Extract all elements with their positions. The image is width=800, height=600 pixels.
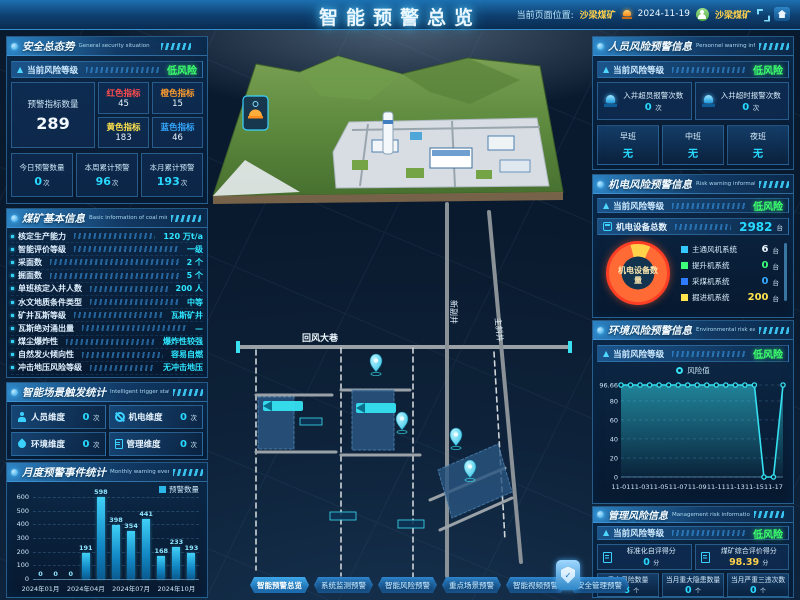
stat-box: 本月累计预警193次 bbox=[141, 153, 203, 197]
stat-value: 96次 bbox=[96, 175, 119, 188]
panel-deco bbox=[759, 327, 789, 334]
info-label: 智能评价等级 bbox=[18, 244, 66, 255]
mine-info-row: 单班核定入井人数200 人 bbox=[11, 283, 203, 296]
panel-title: 煤矿基本信息 bbox=[22, 211, 85, 226]
bullet-icon bbox=[11, 261, 14, 264]
legend-unit: 台 bbox=[773, 277, 780, 287]
trigger-box: 管理维度0 次 bbox=[109, 432, 204, 456]
bullet-icon bbox=[11, 340, 14, 343]
leader-dots bbox=[82, 325, 187, 331]
mine-info-row: 智能评价等级一级 bbox=[11, 243, 203, 256]
panel-deco bbox=[173, 469, 203, 476]
y-axis-tick: 100 bbox=[11, 561, 29, 569]
indicator-label: 蓝色指标 bbox=[160, 121, 194, 133]
mine-info-row: 掘面数5 个 bbox=[11, 270, 203, 283]
data-point bbox=[619, 383, 623, 387]
stat-label: 今日预警数量 bbox=[20, 162, 65, 173]
bar bbox=[157, 556, 165, 579]
clipboard-icon bbox=[115, 439, 123, 449]
panel-title: 人员风险预警信息 bbox=[608, 39, 692, 54]
mine-info-row: 采面数2 个 bbox=[11, 256, 203, 269]
leader-dots bbox=[86, 67, 159, 73]
mgmt-stat-value: 0 个 bbox=[750, 585, 766, 596]
panel-title: 智能场景触发统计 bbox=[22, 385, 106, 400]
legend-label: 主通风机系统 bbox=[692, 244, 758, 255]
info-value: 2 个 bbox=[187, 257, 203, 268]
bar-value-label: 193 bbox=[181, 544, 201, 552]
x-axis-tick: 11-15 bbox=[745, 483, 764, 491]
bar-value-label: 0 bbox=[61, 570, 81, 578]
info-label: 自然发火倾向性 bbox=[18, 349, 74, 360]
alarm-label: 入井超员报警次数 bbox=[623, 90, 683, 101]
trigger-label: 环境维度 bbox=[31, 438, 79, 450]
info-value: 爆炸性较强 bbox=[163, 336, 203, 347]
data-point bbox=[705, 383, 709, 387]
panel-title: 安全总态势 bbox=[22, 39, 75, 54]
donut-center-label: 机电设备数量 bbox=[617, 255, 659, 297]
alarm-value: 0 次 bbox=[645, 102, 662, 113]
risk-level-row: ▲ 当前风险等级 低风险 bbox=[597, 345, 789, 362]
bullet-icon bbox=[11, 366, 14, 369]
bullet-icon bbox=[11, 248, 14, 251]
stat-label: 本周累计预警 bbox=[85, 162, 130, 173]
data-point bbox=[733, 383, 737, 387]
indicator-total-box: 预警指标数量 289 bbox=[11, 82, 95, 148]
risk-level-row: ▲ 当前风险等级 低风险 bbox=[597, 61, 789, 78]
score-label: 标准化自评得分 bbox=[627, 546, 676, 556]
alarm-box: 入井超时报警次数0 次 bbox=[695, 82, 790, 120]
legend-label: 采煤机系统 bbox=[692, 276, 758, 287]
equipment-legend: 主通风机系统6 台提升机系统0 台采煤机系统0 台掘进机系统200 台 bbox=[681, 243, 779, 304]
x-axis-tick: 11-05 bbox=[650, 483, 669, 491]
bar-value-label: 168 bbox=[151, 547, 171, 555]
leader-dots bbox=[90, 299, 179, 305]
panel-title: 月度预警事件统计 bbox=[22, 465, 106, 480]
data-point bbox=[762, 475, 766, 479]
equipment-total-value: 2982 bbox=[739, 220, 772, 234]
env-line-chart: 02040608096.6611-0111-0311-0511-0711-091… bbox=[595, 375, 793, 499]
legend-scrollbar[interactable] bbox=[784, 243, 787, 301]
panel-header: 安全总态势 General security situation bbox=[7, 37, 207, 56]
gear-icon bbox=[115, 412, 125, 422]
panel-header: 煤矿基本信息 Basic information of coal mine bbox=[7, 209, 207, 228]
y-axis-tick: 60 bbox=[610, 416, 618, 424]
y-axis-tick: 40 bbox=[610, 435, 618, 443]
x-axis-tick: 2024年10月 bbox=[150, 583, 202, 593]
bullet-icon bbox=[11, 301, 14, 304]
panel-dot-icon bbox=[11, 215, 18, 222]
alarm-count-row: 入井超员报警次数0 次入井超时报警次数0 次 bbox=[597, 82, 789, 120]
location-label: 当前页面位置: bbox=[517, 8, 574, 21]
info-label: 煤尘爆炸性 bbox=[18, 336, 58, 347]
stat-unit: 次 bbox=[112, 179, 119, 187]
bar bbox=[82, 553, 90, 579]
bullet-icon bbox=[11, 353, 14, 356]
shift-box: 夜班无 bbox=[727, 125, 789, 165]
indicator-label: 橙色指标 bbox=[160, 87, 194, 99]
equipment-donut-chart: 机电设备数量 bbox=[603, 241, 673, 311]
dashboard-root: 回风大巷 新副井 主斜井 智能预警总览 当前页面位置: 沙梁煤矿 2024-11… bbox=[0, 0, 800, 600]
indicator-grid: 红色指标45橙色指标15黄色指标183蓝色指标46 bbox=[98, 82, 203, 148]
indicator-total-label: 预警指标数量 bbox=[27, 98, 78, 110]
panel-deco bbox=[173, 389, 203, 396]
info-label: 瓦斯绝对涌出量 bbox=[18, 323, 74, 334]
leader-dots bbox=[90, 286, 168, 292]
leader-dots bbox=[672, 203, 745, 209]
panel-header: 人员风险预警信息 Personnel warning information bbox=[593, 37, 793, 56]
alarm-lamp-icon bbox=[604, 95, 617, 107]
bullet-icon bbox=[11, 287, 14, 290]
risk-label: 当前风险等级 bbox=[613, 348, 664, 360]
indicator-value: 183 bbox=[115, 133, 131, 143]
shift-value: 无 bbox=[688, 145, 698, 160]
leader-dots bbox=[74, 233, 155, 239]
x-axis-tick: 11-01 bbox=[612, 483, 631, 491]
score-box: 煤矿综合评价得分98.39 分 bbox=[695, 544, 790, 570]
panel-trigger-stats: 智能场景触发统计 Intelligent trigger statistics … bbox=[6, 382, 208, 460]
grid-line bbox=[33, 497, 199, 498]
info-value: 200 人 bbox=[176, 283, 203, 294]
legend-swatch bbox=[681, 278, 688, 285]
bullet-icon bbox=[11, 314, 14, 317]
y-axis-tick: 300 bbox=[11, 534, 29, 542]
bar-value-label: 191 bbox=[76, 544, 96, 552]
trigger-label: 管理维度 bbox=[127, 438, 177, 450]
risk-level-row: ▲ 当前风险等级 低风险 bbox=[597, 526, 789, 540]
nav-button[interactable]: 智能预警总览 bbox=[250, 577, 309, 593]
tunnel-network bbox=[236, 204, 572, 578]
trigger-unit: 次 bbox=[191, 414, 198, 422]
legend-unit: 台 bbox=[773, 261, 780, 271]
fullscreen-icon[interactable] bbox=[757, 9, 768, 20]
header-date: 2024-11-19 bbox=[638, 9, 690, 19]
indicator-value: 15 bbox=[172, 99, 183, 109]
risk-level-row: ▲ 当前风险等级 低风险 bbox=[11, 61, 203, 78]
nav-button[interactable]: 重点场景预警 bbox=[442, 577, 501, 593]
info-label: 核定生产能力 bbox=[18, 231, 66, 242]
y-axis-tick: 200 bbox=[11, 548, 29, 556]
panel-subtitle: Environmental risk early warning bbox=[696, 327, 755, 333]
x-axis-tick: 11-13 bbox=[726, 483, 745, 491]
indicator-value: 46 bbox=[172, 133, 183, 143]
alarm-unit: 次 bbox=[655, 104, 662, 112]
drop-icon bbox=[16, 438, 27, 449]
panel-dot-icon bbox=[11, 43, 18, 50]
y-axis-tick: 20 bbox=[610, 454, 618, 462]
trigger-unit: 次 bbox=[191, 441, 198, 449]
y-axis-tick: 0 bbox=[11, 575, 29, 583]
info-value: 5 个 bbox=[187, 270, 203, 281]
panel-header: 月度预警事件统计 Monthly warning event statistic… bbox=[7, 463, 207, 482]
info-label: 掘面数 bbox=[18, 270, 42, 281]
y-axis-tick: 80 bbox=[610, 397, 618, 405]
user-avatar[interactable] bbox=[696, 8, 709, 21]
equipment-total-row: 机电设备总数 2982 台 bbox=[597, 218, 789, 235]
alarm-text: 入井超员报警次数0 次 bbox=[622, 90, 685, 113]
alarm-text: 入井超时报警次数0 次 bbox=[720, 90, 783, 113]
shift-label: 夜班 bbox=[750, 131, 766, 142]
legend-swatch bbox=[681, 262, 688, 269]
leader-dots bbox=[90, 365, 155, 371]
x-axis-tick: 2024年01月 bbox=[15, 583, 67, 593]
document-icon bbox=[701, 552, 710, 563]
document-icon bbox=[603, 552, 612, 563]
y-axis-tick: 96.66 bbox=[599, 382, 618, 390]
bar-value-label: 441 bbox=[136, 510, 156, 518]
bar bbox=[127, 531, 135, 579]
panel-title: 环境风险预警信息 bbox=[608, 323, 692, 338]
trigger-label: 机电维度 bbox=[129, 411, 177, 423]
info-label: 冲击地压风险等级 bbox=[18, 362, 82, 373]
panel-subtitle: Personnel warning information bbox=[696, 43, 755, 49]
panel-subtitle: Intelligent trigger statistics bbox=[110, 389, 169, 395]
mine-info-row: 水文地质条件类型中等 bbox=[11, 296, 203, 309]
bullet-icon bbox=[11, 274, 14, 277]
shaft-label-1: 新副井 bbox=[449, 300, 459, 324]
legend-swatch bbox=[681, 246, 688, 253]
mgmt-stat-unit: 个 bbox=[695, 588, 701, 595]
equipment-legend-item: 提升机系统0 台 bbox=[681, 259, 779, 272]
legend-unit: 台 bbox=[773, 245, 780, 255]
trigger-unit: 次 bbox=[93, 414, 100, 422]
panel-deco bbox=[759, 181, 789, 188]
bar bbox=[187, 553, 195, 579]
x-axis-tick: 11-17 bbox=[764, 483, 783, 491]
score-value: 98.39 分 bbox=[729, 557, 768, 568]
score-unit: 分 bbox=[762, 560, 768, 567]
shift-label: 中班 bbox=[685, 131, 701, 142]
trigger-value: 0 次 bbox=[180, 439, 197, 450]
legend-unit: 台 bbox=[773, 293, 780, 303]
score-text: 标准化自评得分0 分 bbox=[617, 546, 686, 568]
indicator-label: 红色指标 bbox=[106, 87, 140, 99]
monthly-bar-chart: 0100200300400500600000191598398354441168… bbox=[11, 485, 203, 595]
indicator-box: 红色指标45 bbox=[98, 82, 149, 114]
data-point bbox=[638, 383, 642, 387]
info-value: 容易自燃 bbox=[171, 349, 203, 360]
data-point bbox=[628, 383, 632, 387]
panel-mine-info: 煤矿基本信息 Basic information of coal mine 核定… bbox=[6, 208, 208, 378]
shift-value: 无 bbox=[623, 145, 633, 160]
shift-label: 早班 bbox=[620, 131, 636, 142]
leader-dots bbox=[50, 273, 179, 279]
alarm-lamp-icon bbox=[702, 95, 715, 107]
tunnel-label: 回风大巷 bbox=[302, 332, 339, 344]
risk-label: 当前风险等级 bbox=[613, 527, 664, 539]
shield-icon: ✓ bbox=[561, 567, 575, 584]
risk-value: 低风险 bbox=[753, 62, 783, 77]
stat-box: 今日预警数量0次 bbox=[11, 153, 73, 197]
equipment-legend-item: 采煤机系统0 台 bbox=[681, 275, 779, 288]
panel-dot-icon bbox=[11, 469, 18, 476]
risk-label: 当前风险等级 bbox=[613, 200, 664, 212]
alarm-unit: 次 bbox=[753, 104, 760, 112]
risk-value: 低风险 bbox=[753, 198, 783, 213]
panel-env-risk: 环境风险预警信息 Environmental risk early warnin… bbox=[592, 320, 794, 504]
risk-value: 低风险 bbox=[167, 62, 197, 77]
grid-line bbox=[33, 511, 199, 512]
stat-box: 本周累计预警96次 bbox=[76, 153, 138, 197]
x-axis-tick: 11-03 bbox=[631, 483, 650, 491]
score-row: 标准化自评得分0 分煤矿综合评价得分98.39 分 bbox=[597, 544, 789, 570]
x-axis-tick: 11-07 bbox=[669, 483, 688, 491]
data-point bbox=[686, 383, 690, 387]
indicator-value: 45 bbox=[118, 99, 129, 109]
x-axis-tick: 2024年04月 bbox=[60, 583, 112, 593]
y-axis-tick: 400 bbox=[11, 520, 29, 528]
panel-subtitle: Basic information of coal mine bbox=[89, 215, 167, 221]
mgmt-stat-box: 当月严重三违次数0 个 bbox=[727, 573, 789, 597]
panel-mech-risk: 机电风险预警信息 Risk warning information ▲ 当前风险… bbox=[592, 174, 794, 318]
warning-triangle-icon: ▲ bbox=[603, 202, 609, 210]
legend-value: 6 bbox=[762, 244, 769, 255]
warning-triangle-icon: ▲ bbox=[17, 66, 23, 74]
mgmt-stat-unit: 个 bbox=[760, 588, 766, 595]
score-value: 0 分 bbox=[643, 557, 659, 568]
leader-dots bbox=[675, 224, 731, 230]
indicator-total-value: 289 bbox=[36, 114, 69, 133]
mine-info-row: 核定生产能力120 万t/a bbox=[11, 230, 203, 243]
home-button[interactable] bbox=[774, 7, 790, 21]
info-label: 采面数 bbox=[18, 257, 42, 268]
panel-subtitle: Management risk information bbox=[672, 512, 750, 518]
info-value: 无冲击地压 bbox=[163, 362, 203, 373]
risk-value: 低风险 bbox=[753, 346, 783, 361]
mgmt-stat-box: 当月重大隐患数量0 个 bbox=[662, 573, 724, 597]
data-point bbox=[695, 383, 699, 387]
mine-info-row: 煤尘爆炸性爆炸性较强 bbox=[11, 336, 203, 349]
panel-dot-icon bbox=[597, 43, 604, 50]
bar-value-label: 354 bbox=[121, 522, 141, 530]
info-value: 120 万t/a bbox=[163, 231, 203, 242]
data-point bbox=[752, 383, 756, 387]
data-point bbox=[781, 383, 785, 387]
risk-label: 当前风险等级 bbox=[27, 64, 78, 76]
risk-value: 低风险 bbox=[753, 526, 783, 541]
panel-subtitle: Risk warning information bbox=[696, 181, 755, 187]
info-value: 中等 bbox=[187, 297, 203, 308]
score-text: 煤矿综合评价得分98.39 分 bbox=[715, 546, 784, 568]
info-value: 一级 bbox=[187, 244, 203, 255]
leader-dots bbox=[50, 259, 179, 265]
header-info: 当前页面位置: 沙梁煤矿 2024-11-19 沙梁煤矿 bbox=[517, 7, 790, 21]
nav-button[interactable]: 系统监测预警 bbox=[314, 577, 373, 593]
legend-label: 提升机系统 bbox=[692, 260, 758, 271]
trigger-value: 0 次 bbox=[180, 412, 197, 423]
panel-dot-icon bbox=[597, 181, 604, 188]
panel-dot-icon bbox=[597, 511, 604, 518]
shift-box: 中班无 bbox=[662, 125, 724, 165]
panel-dot-icon bbox=[597, 327, 604, 334]
score-label: 煤矿综合评价得分 bbox=[721, 546, 777, 556]
score-box: 标准化自评得分0 分 bbox=[597, 544, 692, 570]
mine-info-row: 矿井瓦斯等级瓦斯矿井 bbox=[11, 309, 203, 322]
indicator-box: 橙色指标15 bbox=[152, 82, 203, 114]
equipment-legend-item: 掘进机系统200 台 bbox=[681, 291, 779, 304]
user-name[interactable]: 沙梁煤矿 bbox=[715, 8, 751, 21]
trigger-label: 人员维度 bbox=[31, 411, 79, 423]
panel-personnel-risk: 人员风险预警信息 Personnel warning information ▲… bbox=[592, 36, 794, 170]
mine-info-row: 瓦斯绝对涌出量— bbox=[11, 322, 203, 335]
y-axis-tick: 0 bbox=[614, 474, 618, 482]
safety-shield-button[interactable]: ✓ bbox=[556, 560, 580, 590]
x-axis-line bbox=[33, 579, 199, 580]
info-value: — bbox=[195, 324, 203, 333]
shift-value: 无 bbox=[753, 145, 763, 160]
legend-value: 0 bbox=[762, 276, 769, 287]
info-label: 水文地质条件类型 bbox=[18, 297, 82, 308]
leader-dots bbox=[672, 351, 745, 357]
panel-subtitle: Monthly warning event statistics bbox=[110, 469, 169, 475]
mgmt-stat-label: 当月严重三违次数 bbox=[731, 574, 785, 584]
mgmt-stat-unit: 个 bbox=[633, 588, 639, 595]
bullet-icon bbox=[11, 327, 14, 330]
panel-deco bbox=[759, 43, 789, 50]
terrain-alarm-badge[interactable] bbox=[243, 96, 268, 130]
panel-header: 管理风险信息 Management risk information bbox=[593, 507, 793, 523]
info-label: 矿井瓦斯等级 bbox=[18, 310, 66, 321]
bar bbox=[172, 547, 180, 579]
panel-header: 智能场景触发统计 Intelligent trigger statistics bbox=[7, 383, 207, 402]
leader-dots bbox=[672, 530, 745, 536]
y-axis-tick: 600 bbox=[11, 493, 29, 501]
data-point bbox=[714, 383, 718, 387]
shift-box: 早班无 bbox=[597, 125, 659, 165]
equipment-legend-item: 主通风机系统6 台 bbox=[681, 243, 779, 256]
warning-triangle-icon: ▲ bbox=[603, 350, 609, 358]
bullet-icon bbox=[11, 235, 14, 238]
data-point bbox=[657, 383, 661, 387]
leader-dots bbox=[66, 339, 155, 345]
legend-value: 200 bbox=[748, 292, 769, 303]
bar-value-label: 598 bbox=[91, 488, 111, 496]
x-axis-tick: 11-11 bbox=[707, 483, 726, 491]
bar bbox=[97, 497, 105, 579]
data-point bbox=[771, 475, 775, 479]
trigger-grid: 人员维度0 次机电维度0 次环境维度0 次管理维度0 次 bbox=[11, 405, 203, 456]
y-axis-tick: 500 bbox=[11, 507, 29, 515]
trigger-box: 机电维度0 次 bbox=[109, 405, 204, 429]
equipment-total-unit: 台 bbox=[777, 222, 784, 232]
indicator-box: 黄色指标183 bbox=[98, 117, 149, 149]
panel-security-overview: 安全总态势 General security situation ▲ 当前风险等… bbox=[6, 36, 208, 204]
panel-deco bbox=[754, 511, 784, 518]
legend-label: 掘进机系统 bbox=[692, 292, 744, 303]
score-unit: 分 bbox=[653, 560, 659, 567]
alarm-label: 入井超时报警次数 bbox=[721, 90, 781, 101]
data-point bbox=[743, 383, 747, 387]
stat-value: 193次 bbox=[157, 175, 187, 188]
trigger-value: 0 次 bbox=[83, 412, 100, 423]
panel-monthly-warnings: 月度预警事件统计 Monthly warning event statistic… bbox=[6, 462, 208, 598]
panel-deco bbox=[161, 43, 191, 50]
stat-unit: 次 bbox=[43, 179, 50, 187]
person-icon bbox=[17, 412, 27, 422]
panel-deco bbox=[171, 215, 201, 222]
stat-unit: 次 bbox=[181, 179, 188, 187]
trigger-unit: 次 bbox=[93, 441, 100, 449]
legend-dot bbox=[676, 367, 683, 374]
nav-button[interactable]: 智能风险预警 bbox=[378, 577, 437, 593]
mine-info-row: 自然发火倾向性容易自燃 bbox=[11, 349, 203, 362]
data-point bbox=[724, 383, 728, 387]
alarm-box: 入井超员报警次数0 次 bbox=[597, 82, 692, 120]
panel-header: 环境风险预警信息 Environmental risk early warnin… bbox=[593, 321, 793, 340]
info-label: 单班核定入井人数 bbox=[18, 283, 82, 294]
indicator-label: 黄色指标 bbox=[106, 121, 140, 133]
mine-info-row: 冲击地压风险等级无冲击地压 bbox=[11, 362, 203, 375]
x-axis-tick: 11-09 bbox=[688, 483, 707, 491]
